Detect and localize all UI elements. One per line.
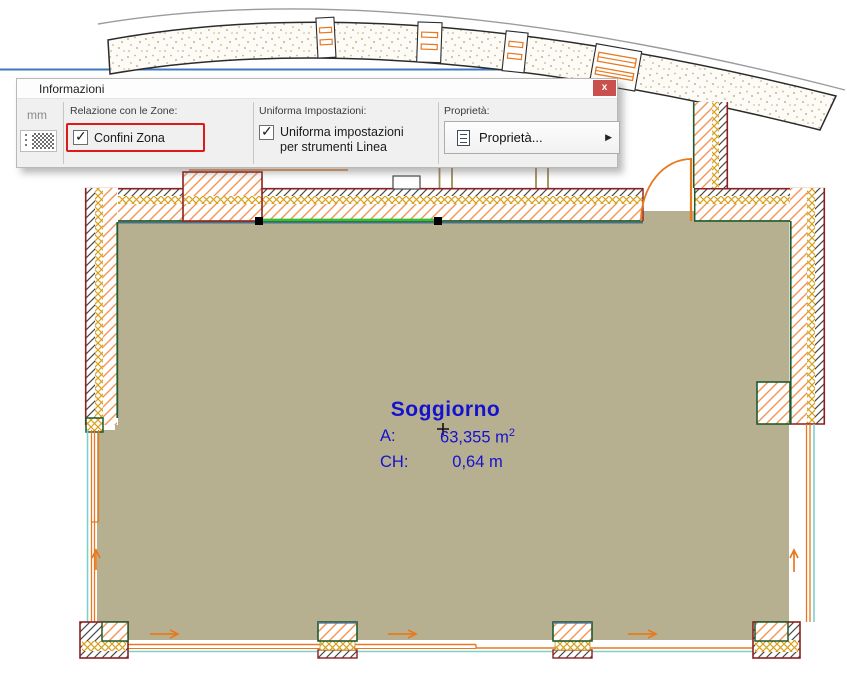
- wall-left[interactable]: [85, 188, 118, 432]
- uniform-settings-checkbox[interactable]: ✓: [259, 125, 274, 140]
- uniform-settings-row: ✓ Uniforma impostazioni per strumenti Li…: [259, 125, 422, 155]
- wall-left-thin[interactable]: [88, 430, 99, 651]
- fill-preview-icon: [32, 133, 54, 149]
- info-box-palette: Informazioni x mm Relazione con le Zone:…: [16, 78, 618, 168]
- checkmark-icon: ✓: [75, 128, 87, 145]
- zone-stamp[interactable]: Soggiorno A: 63,355 m2 CH: 0,64 m: [358, 398, 533, 472]
- close-icon: x: [602, 82, 608, 93]
- unit-label: mm: [27, 108, 47, 122]
- pen-preview-icon: [25, 134, 27, 148]
- checkmark-icon: ✓: [261, 123, 273, 140]
- zone-boundary-highlight: ✓ Confini Zona: [66, 123, 205, 152]
- wall-top[interactable]: [85, 188, 643, 223]
- properties-button-label: Proprietà...: [479, 130, 543, 145]
- zone-area-row: A: 63,355 m2: [358, 427, 533, 448]
- confini-zona-label: Confini Zona: [94, 131, 165, 145]
- uniform-settings-label: Uniforma impostazioni per strumenti Line…: [280, 125, 422, 155]
- selection-handle[interactable]: [255, 217, 263, 225]
- wall-bottom-thin[interactable]: [82, 645, 800, 652]
- zone-height-label: CH:: [380, 453, 422, 472]
- column-marker: [393, 176, 420, 189]
- zone-height-row: CH: 0,64 m: [358, 453, 533, 472]
- pier-bottom-right[interactable]: [753, 622, 800, 658]
- selection-handle[interactable]: [434, 217, 442, 225]
- separator: [63, 102, 64, 164]
- zone-name: Soggiorno: [358, 398, 533, 422]
- confini-zona-checkbox[interactable]: ✓: [73, 130, 88, 145]
- wall-entry[interactable]: [693, 102, 728, 188]
- fill-pattern-preview[interactable]: [20, 130, 57, 152]
- submenu-arrow-icon: ▶: [605, 132, 612, 143]
- wall-pilaster[interactable]: [183, 172, 262, 221]
- facade-mullion: [502, 31, 528, 73]
- flow-arrow-up-icon: [790, 550, 798, 572]
- properties-button[interactable]: Proprietà... ▶: [444, 121, 620, 154]
- application-window: Soggiorno A: 63,355 m2 CH: 0,64 m Inform…: [0, 0, 847, 674]
- section-header-uniform: Uniforma Impostazioni:: [259, 105, 366, 117]
- section-header-zone: Relazione con le Zone:: [70, 105, 177, 117]
- column-lines: [440, 168, 549, 188]
- document-icon: [457, 130, 470, 146]
- wall-right-thin[interactable]: [807, 424, 815, 622]
- section-header-properties: Proprietà:: [444, 105, 490, 117]
- pier-bottom-mid-2[interactable]: [553, 622, 592, 658]
- facade-mullion: [316, 17, 336, 58]
- palette-body: mm Relazione con le Zone: ✓ Confini Zona…: [17, 99, 617, 167]
- pier-bottom-left[interactable]: [80, 622, 128, 658]
- zone-area-label: A:: [380, 427, 422, 448]
- close-button[interactable]: x: [593, 80, 616, 96]
- separator: [438, 102, 439, 164]
- zone-area-value: 63,355 m2: [422, 427, 533, 448]
- palette-title: Informazioni: [39, 82, 104, 96]
- palette-title-bar[interactable]: Informazioni x: [17, 79, 617, 99]
- separator: [253, 102, 254, 164]
- zone-height-value: 0,64 m: [422, 453, 533, 472]
- pier-bottom-mid-1[interactable]: [318, 622, 357, 658]
- facade-mullion: [417, 22, 442, 63]
